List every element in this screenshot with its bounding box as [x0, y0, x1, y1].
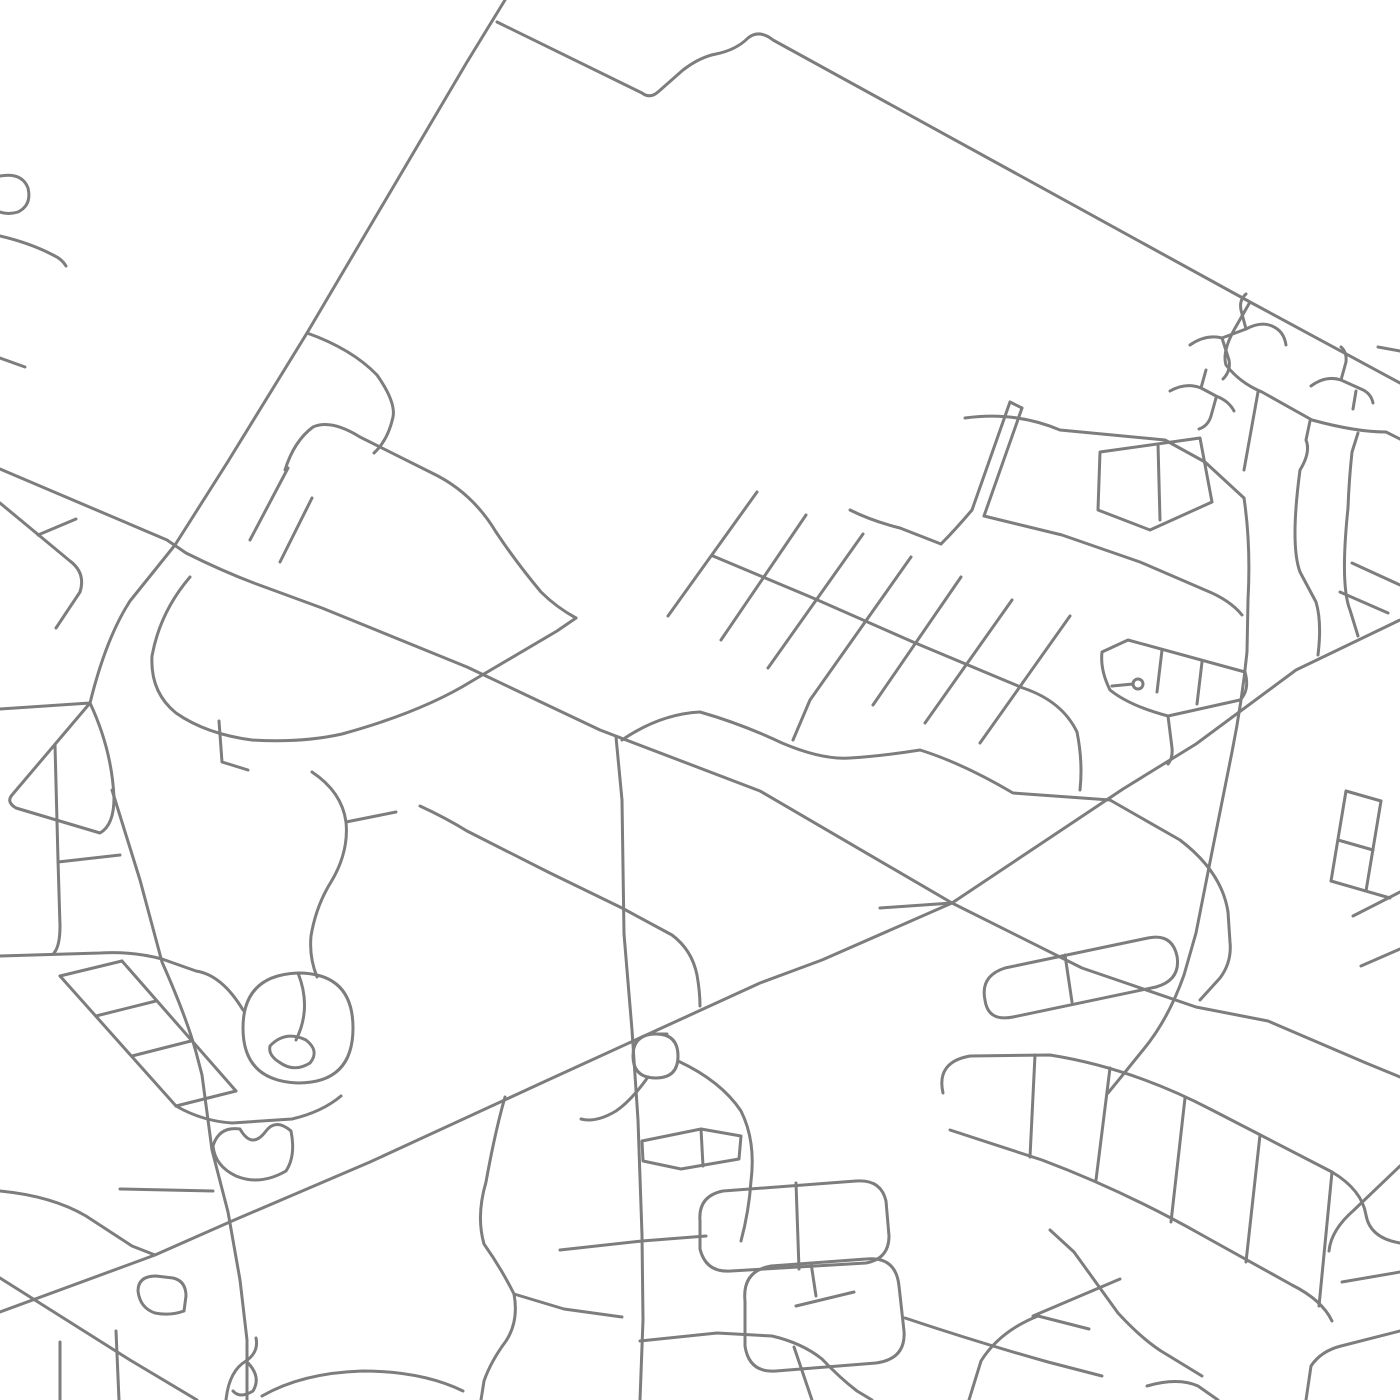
road-zigzag-1 [1295, 421, 1320, 655]
road-bottom-wavy [262, 1371, 463, 1396]
road-pill-loop-1 [700, 1181, 889, 1271]
road-ladder-se-rung-1 [1030, 1055, 1035, 1157]
road-ladder-se-endcurve [969, 1316, 1038, 1400]
road-road-h2 [420, 806, 700, 1006]
road-left-nbhd-vertical [54, 745, 60, 953]
road-ladder-se-rail-3 [1050, 1230, 1202, 1376]
road-ladder-se-rail-2 [950, 1130, 1332, 1321]
road-right-edge-dash-4 [1361, 949, 1400, 966]
road-comb-tooth-3 [768, 534, 863, 668]
map-canvas [0, 0, 1400, 1400]
road-edge-hook-nw-2 [0, 236, 66, 266]
road-road-h-corner [0, 1278, 197, 1400]
road-triangle-loop-west [10, 703, 114, 833]
road-ladder-rung-1 [60, 961, 122, 976]
road-oval-inner-arc [296, 973, 305, 1040]
road-comb-connector [850, 510, 941, 544]
road-s1-branch [514, 1294, 622, 1317]
road-comb-tooth-7 [980, 616, 1070, 743]
road-s-road-left [311, 772, 347, 977]
road-parallel-rung-w [38, 519, 76, 535]
road-culdesac-2a [1170, 386, 1234, 411]
road-pill-loop-3 [984, 937, 1177, 1018]
road-hook-branch [307, 333, 393, 453]
road-kite-rung-2 [1197, 662, 1202, 704]
road-lower-diagonal-mesh [984, 516, 1242, 615]
road-re-grid-rail-2 [1366, 801, 1381, 891]
road-bl-vertical-1 [116, 1331, 119, 1400]
road-road-e2-wavy [622, 712, 1230, 1000]
road-right-edge-road-2 [1342, 1272, 1400, 1282]
road-edge-hook-nw-1 [0, 175, 29, 213]
road-flower-rects [642, 1129, 741, 1169]
road-re-grid-tail [1331, 881, 1390, 898]
road-blocky-rung [1158, 444, 1160, 520]
road-row-dash-2 [280, 498, 312, 562]
road-ladder-se-rung-3 [1171, 1098, 1185, 1222]
road-re-grid-rung-2 [1338, 840, 1373, 850]
road-edge-stub-nw [0, 358, 25, 367]
road-kite-spoke [1112, 684, 1133, 686]
road-right-edge-dash-1 [1352, 563, 1400, 585]
road-comb-tooth-4 [793, 557, 911, 740]
road-bl-bulb [233, 1361, 256, 1395]
road-sweep-curve [285, 425, 576, 618]
road-kite-loop [1102, 640, 1247, 716]
road-culdesac-2c [1199, 398, 1216, 429]
road-corner-road-se [1306, 1331, 1400, 1400]
road-divided-road-cap [1010, 402, 1022, 408]
road-flower-loop [633, 1034, 678, 1078]
road-re-grid-rail-1 [1331, 791, 1346, 881]
road-left-nbhd-branch [58, 855, 120, 862]
road-ladder-se-stub [1038, 1316, 1089, 1329]
road-comb-tooth-5 [873, 577, 961, 705]
road-connector-b-inner [1244, 392, 1258, 470]
road-zigzag-2 [1344, 433, 1358, 636]
road-road-i-vertical [616, 737, 643, 1400]
road-branch-to-bottom [794, 1347, 812, 1400]
road-s-road-branch [346, 812, 396, 822]
road-re-grid-rung-1 [1346, 791, 1381, 801]
road-kite-tail [1168, 716, 1172, 764]
road-bl-feeder [0, 1191, 155, 1255]
road-arterial-b-top [497, 22, 1400, 383]
road-row-dash-1 [250, 468, 288, 540]
road-road-d-south [112, 790, 247, 1400]
road-pill-2-inner [796, 1292, 854, 1306]
road-kite-rung-1 [1157, 650, 1162, 692]
road-cross-street-1240 [560, 1236, 706, 1250]
road-mitten-loop [213, 1125, 293, 1181]
road-edge-stub-ne [1378, 347, 1400, 351]
road-ladder-se-rung-4 [1246, 1135, 1260, 1262]
road-blocky-rect [1098, 438, 1212, 530]
road-culdesac-3a [1311, 378, 1373, 403]
road-culdesac-3c [1353, 391, 1356, 409]
road-culdesac-2b [1201, 370, 1206, 388]
road-comb-spine [713, 556, 1081, 790]
road-s1-curvy [480, 1097, 515, 1400]
road-divided-road-tail [941, 510, 972, 544]
road-corner-curve-se [1147, 1382, 1218, 1400]
road-ladder-rung-2 [96, 1001, 156, 1016]
road-flower-rung [701, 1129, 703, 1166]
road-culdesac-1a [1190, 324, 1286, 345]
road-arterial-nw-west-arm [0, 703, 90, 709]
road-pill-loop-2 [745, 1259, 904, 1371]
road-ladder-rail-1 [60, 976, 176, 1106]
road-ladder-se-rung-5 [1319, 1172, 1332, 1306]
road-ladder-se-rung-2 [1096, 1068, 1110, 1180]
road-pill-1-rung [796, 1183, 799, 1269]
road-mitten-feeder [120, 1189, 213, 1191]
road-pill-2-rung [811, 1263, 816, 1296]
road-oval-connector [196, 971, 243, 1010]
road-bottom-road-se [905, 1318, 1102, 1376]
road-ladder-rung-3 [132, 1041, 191, 1056]
road-comb-tooth-1 [668, 492, 757, 616]
street-map-svg [0, 0, 1400, 1400]
road-l-stub [219, 721, 248, 770]
road-bl-square-hook [138, 1276, 186, 1314]
road-comb-tooth-6 [925, 600, 1012, 723]
road-road-j-vertical [1108, 498, 1249, 1093]
road-oval-inner-loop [270, 1036, 314, 1068]
road-u-curve [152, 577, 576, 741]
